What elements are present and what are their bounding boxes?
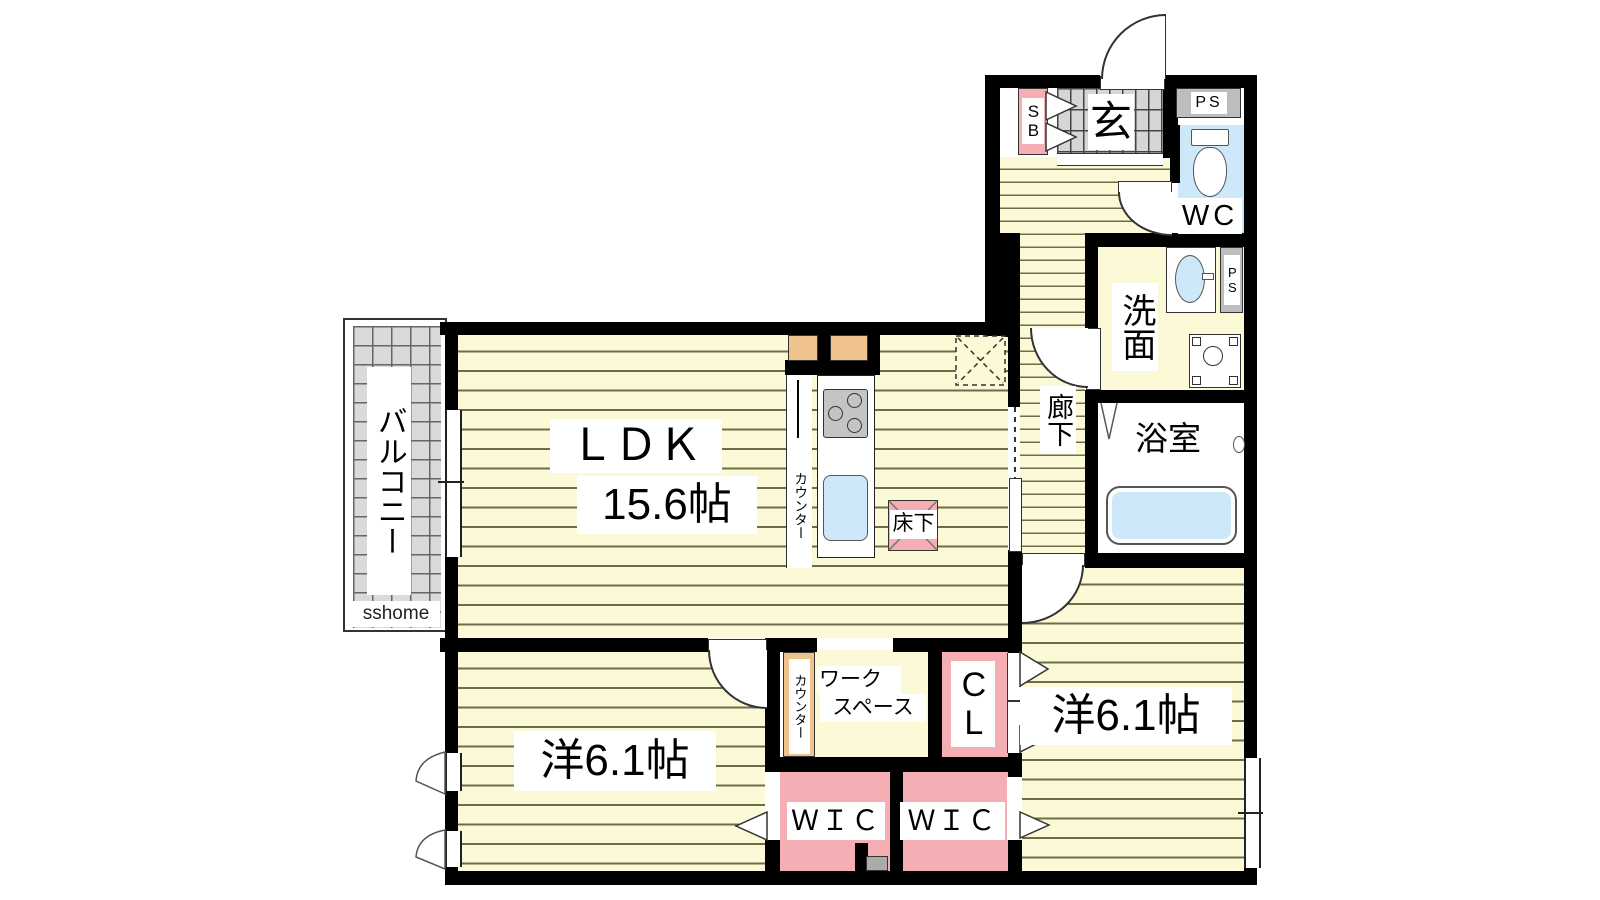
- closet-door-divider: [1007, 700, 1021, 702]
- wall: [1163, 75, 1257, 88]
- wall: [765, 840, 780, 885]
- wall: [765, 650, 780, 772]
- wall: [985, 75, 1100, 88]
- watermark: sshome: [352, 601, 440, 627]
- floor-plan: SB PS WC PS カウンター: [0, 0, 1600, 900]
- entrance-label: 玄: [1088, 94, 1134, 150]
- washroom-label: 洗面: [1112, 283, 1158, 371]
- cabinet: [830, 335, 868, 361]
- wall: [785, 360, 880, 375]
- wall: [445, 322, 458, 411]
- ldk-label: ＬＤＫ: [550, 419, 722, 473]
- bedroom-left-window: [445, 753, 462, 791]
- wall: [1085, 247, 1098, 328]
- kitchen-counter-label: カウンター: [788, 445, 810, 567]
- overhead-cabinet-icon: [955, 335, 1006, 386]
- balcony-window: [445, 410, 462, 557]
- pillar: [866, 856, 888, 871]
- workspace-counter-label: カウンター: [789, 659, 810, 754]
- wall: [1008, 550, 1022, 653]
- wall: [445, 871, 1257, 885]
- wic-right-door-arrow-icon: [1020, 812, 1052, 840]
- wic-right-label: ＷＩＣ: [900, 802, 1005, 840]
- corridor-label: 廊下: [1040, 386, 1076, 454]
- sliding-door-panel: [1009, 478, 1022, 552]
- toilet-icon: [1191, 129, 1229, 146]
- wall: [985, 75, 1000, 337]
- toilet-bowl-icon: [1193, 147, 1227, 197]
- bedroom-left-label: 洋6.1帖: [514, 731, 716, 791]
- casement-window-icon: [415, 751, 445, 795]
- pipe-space-top-label: PS: [1191, 92, 1227, 114]
- wall: [1085, 553, 1257, 568]
- wall: [445, 791, 458, 832]
- window-tick: [438, 481, 464, 483]
- wall: [445, 650, 458, 753]
- wic-left-label: ＷＩＣ: [787, 802, 885, 840]
- kitchen-sink-icon: [823, 475, 868, 541]
- ldk-size-label: 15.6帖: [577, 476, 757, 534]
- bedroom-left-window: [445, 831, 462, 867]
- sink-icon: [1175, 255, 1205, 303]
- bathtub-icon: [1106, 486, 1237, 545]
- wic-right-door-strip: [1007, 777, 1021, 840]
- wall: [1097, 390, 1257, 403]
- bath-window-icon: [1233, 436, 1245, 453]
- entrance-step: [1057, 153, 1163, 166]
- closet-label: CL: [951, 661, 995, 747]
- faucet-icon: [1202, 273, 1214, 280]
- wall: [818, 335, 830, 362]
- bathroom-label: 浴室: [1122, 419, 1214, 459]
- bath-folding-door-icon: [1099, 403, 1119, 441]
- balcony-label: バルコニー: [367, 367, 411, 595]
- entrance-door-arc: [1101, 14, 1166, 79]
- wic-left-door-strip: [766, 772, 780, 840]
- wall: [868, 335, 880, 362]
- wc-label: WC: [1178, 198, 1242, 234]
- stove-icon: [823, 389, 868, 438]
- wall: [1244, 75, 1257, 759]
- kitchen-counter-line: [797, 380, 799, 438]
- wic-left-door-arrow-icon: [734, 812, 768, 842]
- wall: [1170, 125, 1180, 183]
- pipe-space-side-label: PS: [1224, 255, 1240, 305]
- workspace-label-line2: スペース: [820, 694, 926, 722]
- washroom-door-leaf: [1086, 328, 1101, 390]
- washing-machine-icon: [1189, 334, 1241, 388]
- wall: [440, 322, 1020, 335]
- casement-window-icon: [415, 829, 445, 870]
- cabinet: [788, 335, 818, 361]
- closet-door-arrow-icon: [1020, 652, 1050, 688]
- shoe-box-label: SB: [1022, 98, 1044, 144]
- wall: [1085, 390, 1098, 555]
- closet-door-strip: [1007, 653, 1021, 753]
- wall: [1008, 840, 1022, 885]
- bedroom-right-label: 洋6.1帖: [1020, 687, 1232, 745]
- workspace-label-line1: ワーク: [817, 666, 901, 694]
- sliding-door-track: [1009, 407, 1020, 478]
- wall: [893, 638, 1012, 652]
- shoe-box-door-icon: [1046, 90, 1078, 154]
- window-tick: [1238, 812, 1263, 814]
- underfloor-label: 床下: [890, 510, 937, 539]
- wall: [1008, 335, 1020, 407]
- wall: [928, 638, 942, 757]
- wall: [440, 638, 708, 652]
